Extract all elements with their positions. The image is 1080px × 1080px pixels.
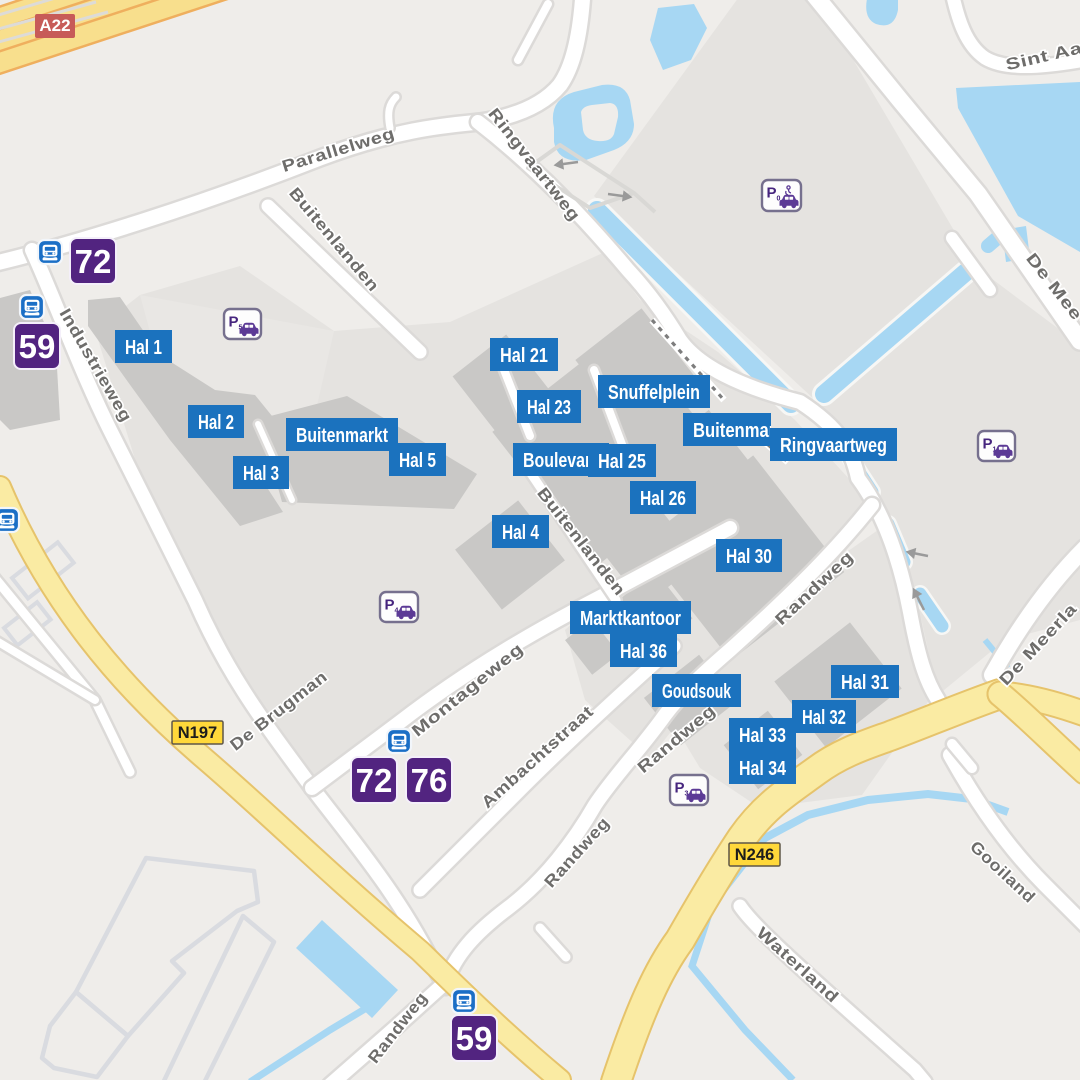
svg-text:Marktkantoor: Marktkantoor bbox=[580, 608, 681, 630]
svg-text:P: P bbox=[767, 185, 777, 202]
svg-text:P: P bbox=[983, 436, 993, 453]
svg-text:Ringvaartweg: Ringvaartweg bbox=[780, 435, 887, 457]
svg-text:N246: N246 bbox=[735, 846, 774, 864]
svg-text:Hal 3: Hal 3 bbox=[243, 463, 279, 485]
svg-text:Hal 2: Hal 2 bbox=[198, 412, 234, 434]
svg-text:Hal 5: Hal 5 bbox=[399, 450, 436, 472]
svg-text:Hal 23: Hal 23 bbox=[527, 397, 571, 419]
svg-text:P: P bbox=[675, 780, 685, 797]
svg-text:Hal 36: Hal 36 bbox=[620, 641, 667, 663]
svg-text:Goudsouk: Goudsouk bbox=[662, 681, 732, 703]
svg-text:P: P bbox=[229, 314, 239, 331]
svg-text:Hal 33: Hal 33 bbox=[739, 725, 786, 747]
svg-text:A22: A22 bbox=[39, 16, 70, 35]
svg-text:72: 72 bbox=[75, 243, 112, 280]
svg-text:Snuffelplein: Snuffelplein bbox=[608, 382, 700, 404]
svg-text:76: 76 bbox=[411, 762, 448, 799]
svg-text:Buitenmarkt: Buitenmarkt bbox=[296, 425, 388, 447]
svg-text:Hal 1: Hal 1 bbox=[125, 337, 162, 359]
svg-text:Hal 26: Hal 26 bbox=[640, 488, 686, 510]
svg-text:Hal 34: Hal 34 bbox=[739, 758, 787, 780]
svg-text:P: P bbox=[385, 597, 395, 614]
svg-text:Hal 31: Hal 31 bbox=[841, 672, 889, 694]
svg-text:72: 72 bbox=[356, 762, 393, 799]
svg-text:Hal 30: Hal 30 bbox=[726, 546, 772, 568]
svg-text:59: 59 bbox=[19, 328, 56, 365]
svg-text:Hal 32: Hal 32 bbox=[802, 707, 846, 729]
svg-text:Hal 25: Hal 25 bbox=[598, 451, 646, 473]
svg-text:N197: N197 bbox=[178, 724, 217, 742]
svg-text:59: 59 bbox=[456, 1020, 493, 1057]
svg-text:Hal 4: Hal 4 bbox=[502, 522, 540, 544]
svg-text:Hal 21: Hal 21 bbox=[500, 345, 548, 367]
